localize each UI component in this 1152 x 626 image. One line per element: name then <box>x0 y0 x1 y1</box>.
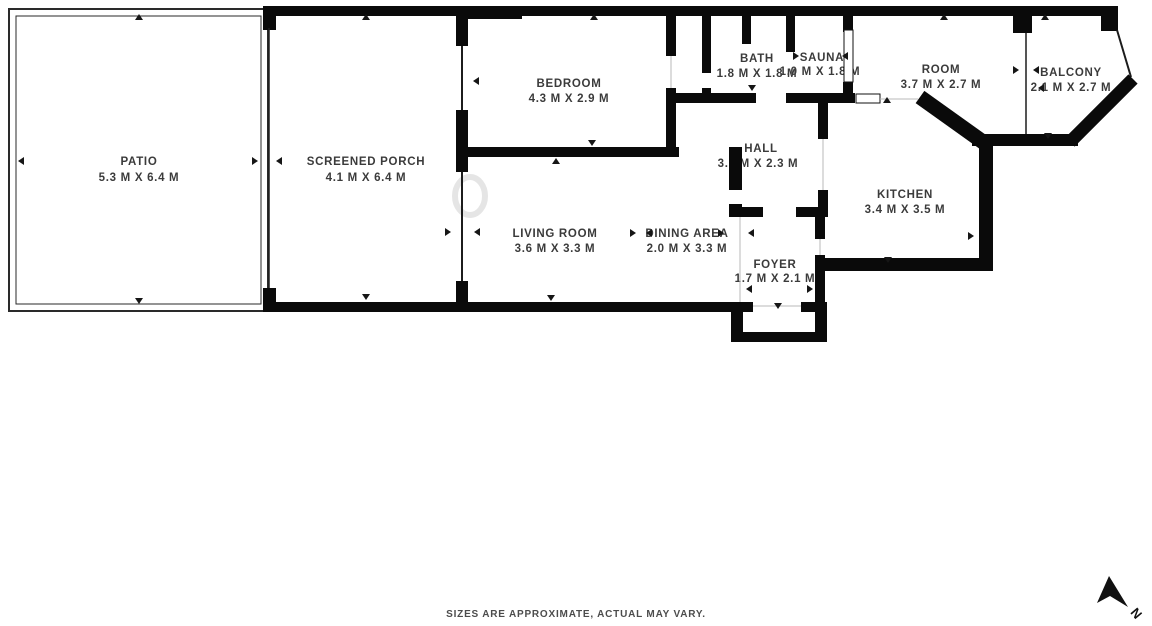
floorplan-page: PATIO 5.3 M X 6.4 M SCREENED PORCH 4.1 M… <box>0 0 1152 626</box>
room-label-dining-area: DINING AREA <box>645 228 728 240</box>
watermark-fragment <box>455 177 485 215</box>
room-dims-dining-area: 2.0 M X 3.3 M <box>647 243 728 255</box>
room-dims-bedroom: 4.3 M X 2.9 M <box>529 93 610 105</box>
room-dims-kitchen: 3.4 M X 3.5 M <box>865 204 946 216</box>
room-dims-room: 3.7 M X 2.7 M <box>901 79 982 91</box>
room-dims-foyer: 1.7 M X 2.1 M <box>735 273 816 285</box>
room-dims-patio: 5.3 M X 6.4 M <box>99 172 180 184</box>
room-label-patio: PATIO <box>121 156 158 168</box>
disclaimer-text: SIZES ARE APPROXIMATE, ACTUAL MAY VARY. <box>446 609 706 620</box>
room-labels: PATIO 5.3 M X 6.4 M SCREENED PORCH 4.1 M… <box>99 52 1112 285</box>
room-label-hall: HALL <box>744 143 777 155</box>
room-label-bath: BATH <box>740 53 774 65</box>
room-label-bedroom: BEDROOM <box>537 78 602 90</box>
north-label: N <box>1128 605 1146 622</box>
north-arrow-icon: N <box>1097 576 1145 622</box>
room-label-foyer: FOYER <box>753 259 796 271</box>
room-label-screened-porch: SCREENED PORCH <box>307 156 425 168</box>
room-label-sauna: SAUNA <box>800 52 844 64</box>
room-label-room: ROOM <box>922 64 961 76</box>
floorplan-canvas: PATIO 5.3 M X 6.4 M SCREENED PORCH 4.1 M… <box>0 0 1152 626</box>
room-label-kitchen: KITCHEN <box>877 189 933 201</box>
room-label-living-room: LIVING ROOM <box>512 228 597 240</box>
room-dims-living-room: 3.6 M X 3.3 M <box>515 243 596 255</box>
room-dims-screened-porch: 4.1 M X 6.4 M <box>326 172 407 184</box>
room-label-balcony: BALCONY <box>1040 67 1102 79</box>
